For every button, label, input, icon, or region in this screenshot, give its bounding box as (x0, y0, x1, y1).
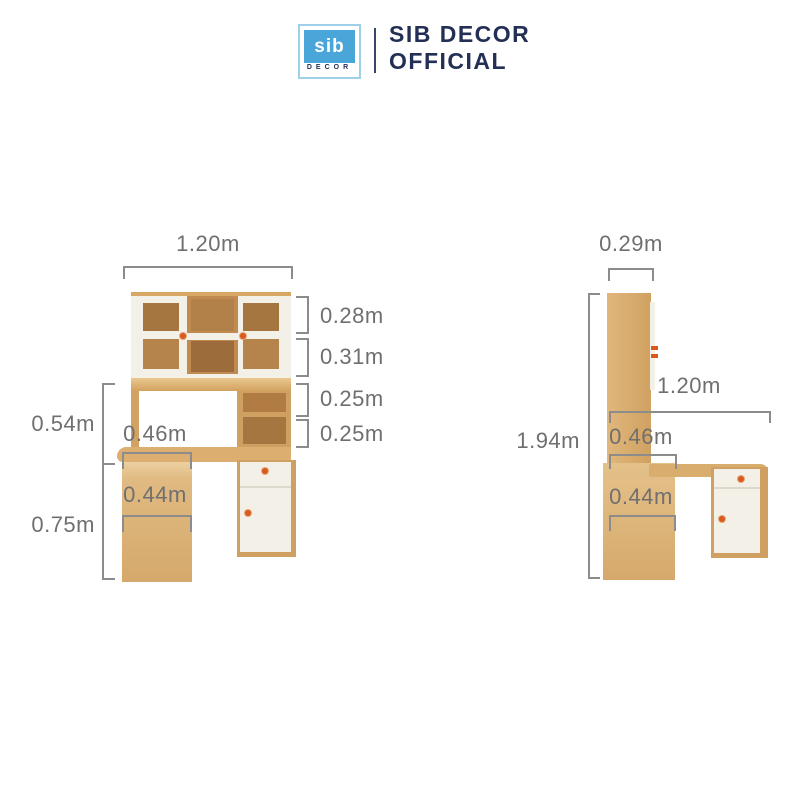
header-divider (374, 28, 376, 73)
side-knob-dash-2 (651, 354, 658, 358)
brand-title: SIB DECOR (389, 21, 530, 48)
bracket-shelf-height-4 (296, 419, 309, 448)
sib-logo: sib DECOR (298, 24, 361, 79)
dim-side-desk-depth: 0.46m (599, 424, 683, 450)
dim-front-desk-depth: 0.46m (113, 421, 197, 447)
side-drawer-unit-front (714, 469, 760, 553)
bracket-front-top-width (123, 266, 293, 279)
bracket-side-height-tick-bottom (588, 577, 600, 579)
side-drawer-knob (738, 476, 744, 482)
bracket-front-pedestal-width (122, 515, 192, 532)
open-shelf-bottom-opening (243, 417, 286, 444)
sib-logo-subtext: DECOR (300, 64, 359, 71)
dim-side-pedestal-depth: 0.44m (599, 484, 683, 510)
sib-logo-text: sib (314, 36, 344, 58)
hutch-bottom-shelf (131, 378, 291, 391)
dim-shelf-height-2: 0.31m (320, 344, 384, 370)
dim-side-desk-length: 1.20m (649, 373, 729, 399)
dim-hutch-to-desk-height: 0.54m (10, 411, 95, 437)
bracket-side-desk-length (609, 411, 771, 423)
hutch-middle-opening-bottom (191, 341, 234, 372)
door-knob (245, 510, 251, 516)
dim-side-top-depth: 0.29m (586, 231, 676, 257)
dim-shelf-height-3: 0.25m (320, 386, 384, 412)
bracket-front-left-tick-mid (102, 463, 115, 465)
bracket-front-left-tick-bottom (102, 578, 115, 580)
hutch-left-door-knob (180, 333, 186, 339)
hutch-middle-shelf (187, 333, 238, 340)
bracket-side-height-tick-top (588, 293, 600, 295)
bracket-shelf-height-3 (296, 383, 309, 417)
dim-desk-height: 0.75m (10, 512, 95, 538)
dim-shelf-height-1: 0.28m (320, 303, 384, 329)
bracket-front-left-line (102, 383, 104, 580)
bracket-side-height-line (588, 293, 590, 579)
bracket-side-pedestal-depth (609, 515, 676, 531)
bracket-side-desk-depth (609, 454, 677, 469)
drawer-unit-front (240, 462, 291, 552)
product-dimension-image: sib DECOR SIB DECOR OFFICIAL (0, 0, 800, 801)
brand-title-block: SIB DECOR OFFICIAL (389, 21, 530, 75)
bracket-shelf-height-1 (296, 296, 309, 334)
drawer-knob (262, 468, 268, 474)
side-door-knob (719, 516, 725, 522)
side-knob-dash-1 (651, 346, 658, 350)
bracket-front-desk-depth (122, 452, 192, 469)
hutch-right-glass-top (243, 303, 279, 331)
bracket-front-left-tick-top (102, 383, 115, 385)
sib-logo-mark: sib (304, 30, 355, 63)
bracket-side-top-depth (608, 268, 654, 281)
dim-front-top-width: 1.20m (123, 231, 293, 257)
bracket-shelf-height-2 (296, 338, 309, 377)
hutch-right-door-knob (240, 333, 246, 339)
dim-front-pedestal-width: 0.44m (113, 482, 197, 508)
side-drawer-divider (714, 487, 760, 489)
hutch-right-glass-bottom (243, 339, 279, 369)
hutch-left-glass-top (143, 303, 179, 331)
dim-side-total-height: 1.94m (498, 428, 580, 454)
drawer-divider (240, 486, 291, 488)
brand-subtitle: OFFICIAL (389, 48, 530, 75)
open-shelf-top-opening (243, 393, 286, 412)
hutch-middle-opening-top (191, 299, 234, 331)
hutch-left-glass-bottom (143, 339, 179, 369)
dim-shelf-height-4: 0.25m (320, 421, 384, 447)
